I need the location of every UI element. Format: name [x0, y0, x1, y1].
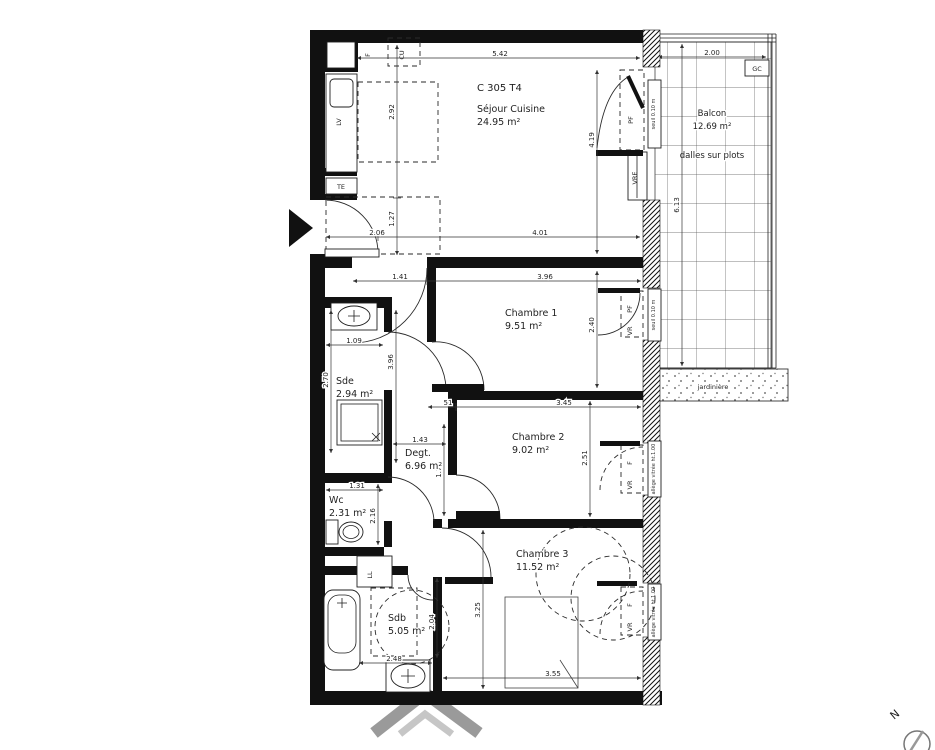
balcony-name: Balcon — [698, 109, 727, 119]
sde-name: Sde — [336, 376, 354, 387]
floor-plan-drawing: GC Balcon 12.69 m² dalles sur plots 2.00… — [0, 0, 935, 750]
dim-ch2-w: 3.45 — [556, 399, 572, 407]
dim-sdb-h: 2.04 — [428, 614, 436, 630]
pf-label-ch1: PF — [626, 305, 634, 313]
sdb-name: Sdb — [388, 613, 406, 624]
bed-icon — [505, 597, 578, 688]
fridge-box — [327, 42, 355, 68]
f-label-ch3: F — [626, 603, 634, 607]
f-label-ch2: F — [626, 461, 634, 465]
floor-plan-page: GC Balcon 12.69 m² dalles sur plots 2.00… — [0, 0, 935, 750]
sejour-area: 24.95 m² — [477, 117, 520, 128]
degt-name: Degt. — [405, 448, 431, 459]
balcony-area: GC Balcon 12.69 m² dalles sur plots 2.00… — [655, 34, 776, 368]
pf-label-sejour: PF — [627, 116, 635, 124]
balcony-note: dalles sur plots — [680, 151, 745, 161]
dim-corridor-h: 3.96 — [387, 354, 395, 370]
dim-ch3-h: 3.25 — [474, 602, 482, 618]
ch1-area: 9.51 m² — [505, 321, 542, 332]
kitchen-block-dashed — [358, 82, 438, 162]
planter-label: jardinière — [697, 383, 729, 391]
ch3-turning-circle-1 — [536, 527, 630, 621]
dim-sde-w: 1.09 — [346, 337, 362, 345]
sejour-name: Séjour Cuisine — [477, 104, 545, 115]
washer-box — [357, 556, 392, 587]
entry-door-arc — [325, 200, 378, 253]
ch1-name: Chambre 1 — [505, 308, 557, 319]
ch3-area: 11.52 m² — [516, 562, 559, 573]
dim-wc-w: 1.31 — [349, 482, 365, 490]
ch2-area: 9.02 m² — [512, 445, 549, 456]
dim-sdb-w: 2.48 — [386, 655, 402, 663]
hatched-wall — [643, 30, 660, 67]
vr-label-ch3: VR — [626, 622, 634, 631]
ch3-turning-circle-2 — [571, 556, 655, 640]
dim-sejour-w: 4.01 — [532, 229, 548, 237]
wc-area: 2.31 m² — [329, 508, 366, 519]
dim-sejour-h: 4.19 — [588, 132, 596, 148]
dim-ch2-h: 2.51 — [581, 450, 589, 466]
unit-title: C 305 T4 — [477, 83, 522, 94]
entry-zone-dashed — [326, 197, 440, 254]
ch2-name: Chambre 2 — [512, 432, 564, 443]
dim-entry-w: 2.06 — [369, 229, 385, 237]
vre-label: VRE — [631, 171, 639, 184]
dim-ch1-h: 2.40 — [588, 317, 596, 333]
gc-label: GC — [752, 65, 762, 73]
te-label: TE — [336, 183, 345, 191]
dim-top: 5.42 — [492, 50, 508, 58]
degt-area: 6.96 m² — [405, 461, 442, 472]
vr-label-ch1: VR — [626, 326, 634, 335]
dim-balcony-height: 6.13 — [673, 197, 681, 213]
north-label: N — [888, 707, 903, 722]
dim-hall-w: 1.41 — [392, 273, 408, 281]
fridge-label: F — [364, 53, 372, 57]
dim-entry-h: 1.27 — [388, 211, 396, 227]
dim-ch1-w: 3.96 — [537, 273, 553, 281]
washer-label: LL — [366, 571, 374, 579]
kitchen-fixtures: F CU LV TE — [326, 38, 438, 194]
sink-icon — [330, 79, 353, 107]
ch3-name: Chambre 3 — [516, 549, 568, 560]
dim-degt-w: 1.43 — [412, 436, 428, 444]
vr-label-ch2: VR — [626, 480, 634, 489]
entry-door-leaf — [325, 249, 379, 257]
sde-area: 2.94 m² — [336, 389, 373, 400]
balcony-area-value: 12.69 m² — [693, 122, 732, 132]
planter-area: jardinière — [657, 369, 788, 401]
dim-ch3-w: 3.55 — [545, 670, 561, 678]
north-compass: N — [888, 707, 930, 750]
wc-name: Wc — [329, 495, 344, 506]
sdb-area: 5.05 m² — [388, 626, 425, 637]
allege-label-ch3: allège vitrée ht.1.00 — [650, 587, 657, 638]
exterior-walls — [310, 30, 662, 705]
allege-label-ch2: allège vitrée ht.1.00 — [650, 444, 657, 495]
entry — [289, 197, 440, 257]
dim-wc-h: 2.16 — [369, 508, 377, 524]
dim-sde-h: 2.70 — [322, 372, 330, 388]
dishwasher-label: LV — [335, 118, 343, 126]
seuil-label-sejour: seuil 0.10 m — [651, 98, 657, 129]
dim-balcony-width: 2.00 — [704, 49, 720, 57]
entry-arrow-icon — [289, 209, 313, 247]
dim-ch2-off: 51 — [444, 399, 453, 407]
seuil-label-ch1: seuil 0.10 m — [651, 299, 657, 330]
dim-kitchen-h: 2.92 — [388, 104, 396, 120]
toilet-tank — [326, 520, 338, 544]
